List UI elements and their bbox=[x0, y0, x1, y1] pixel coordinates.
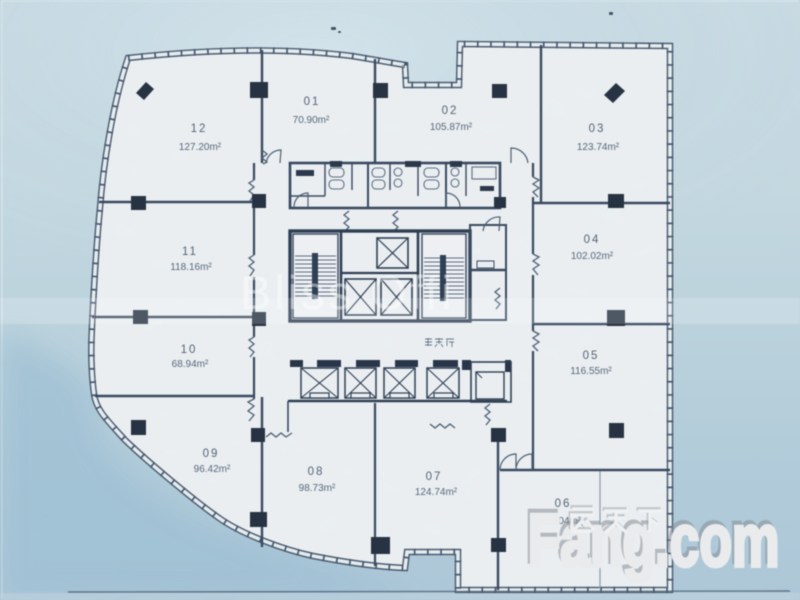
svg-text:Bliss Offi: Bliss Offi bbox=[240, 266, 455, 319]
